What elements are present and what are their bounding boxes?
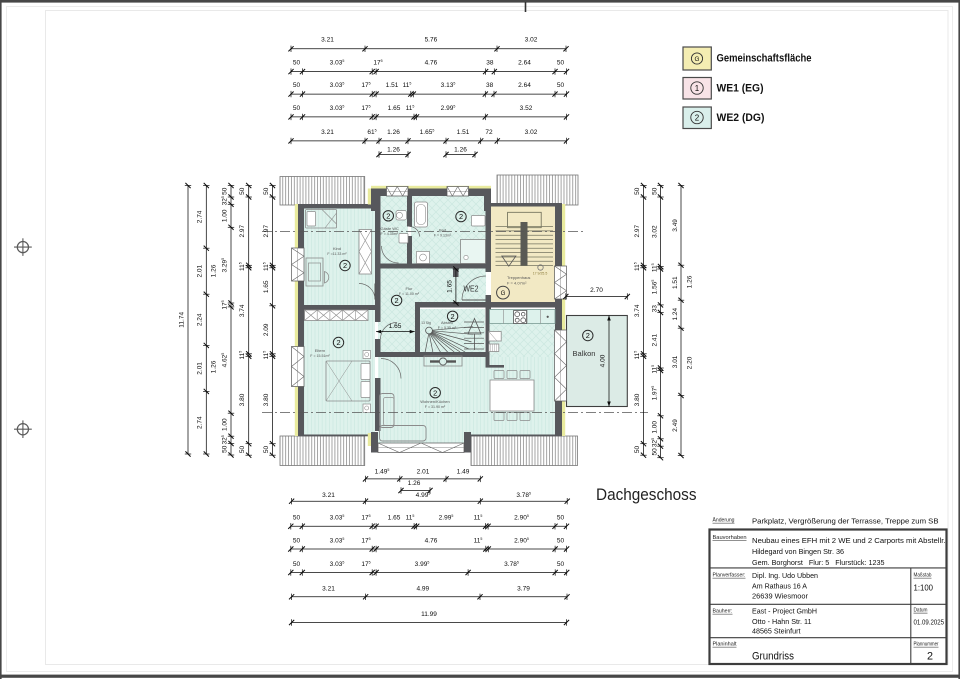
- svg-text:2: 2: [433, 388, 437, 397]
- svg-text:50: 50: [293, 105, 301, 112]
- svg-text:38: 38: [486, 60, 494, 67]
- svg-text:2.97: 2.97: [634, 224, 641, 237]
- svg-text:1.65: 1.65: [263, 280, 270, 293]
- svg-text:2.49: 2.49: [672, 419, 679, 432]
- svg-text:Parkplatz, Vergrößerung der Te: Parkplatz, Vergrößerung der Terrasse, Tr…: [752, 517, 939, 526]
- svg-text:Gemeinschaftsfläche: Gemeinschaftsfläche: [717, 53, 812, 65]
- svg-text:4.99: 4.99: [416, 585, 429, 592]
- svg-text:F = 15.51m²: F = 15.51m²: [310, 354, 330, 358]
- svg-text:3.785: 3.785: [504, 560, 519, 568]
- svg-text:2.97: 2.97: [239, 224, 246, 237]
- svg-text:1.565: 1.565: [651, 280, 659, 295]
- svg-text:50: 50: [557, 60, 565, 67]
- svg-text:Balkon: Balkon: [573, 349, 596, 358]
- svg-text:Wohnen/Küchen: Wohnen/Küchen: [420, 399, 450, 404]
- svg-text:3.21: 3.21: [322, 492, 335, 499]
- svg-text:3.80: 3.80: [634, 393, 641, 406]
- svg-text:2.97: 2.97: [263, 224, 270, 237]
- svg-text:2.905: 2.905: [514, 537, 529, 545]
- svg-text:1.65: 1.65: [389, 323, 402, 330]
- svg-text:2: 2: [459, 212, 463, 221]
- svg-text:50: 50: [557, 82, 565, 89]
- svg-text:Am Rathaus 16 A: Am Rathaus 16 A: [752, 582, 808, 591]
- svg-text:WE1 (EG): WE1 (EG): [717, 83, 764, 95]
- svg-text:3.035: 3.035: [330, 59, 345, 67]
- svg-text:F = 31.90 m²: F = 31.90 m²: [425, 405, 446, 409]
- svg-text:Otto - Hahn Str. 11: Otto - Hahn Str. 11: [752, 617, 812, 626]
- svg-text:17 9/25.5: 17 9/25.5: [533, 272, 548, 276]
- svg-text:3.21: 3.21: [321, 129, 334, 136]
- svg-text:Bad: Bad: [439, 228, 446, 233]
- svg-text:50: 50: [293, 538, 301, 545]
- svg-text:1: 1: [695, 84, 700, 93]
- svg-text:2.995: 2.995: [439, 514, 454, 522]
- svg-text:1.26: 1.26: [687, 275, 694, 288]
- svg-text:3.52: 3.52: [520, 105, 533, 112]
- svg-text:1.24: 1.24: [672, 307, 679, 320]
- svg-text:F = 4.35m²: F = 4.35m²: [381, 232, 399, 236]
- svg-text:3.02: 3.02: [525, 129, 538, 136]
- svg-text:4.00: 4.00: [600, 354, 607, 367]
- svg-text:East - Project GmbH: East - Project GmbH: [752, 607, 817, 616]
- svg-text:F =11.33 m²: F =11.33 m²: [327, 252, 347, 256]
- svg-text:1.26: 1.26: [454, 147, 467, 154]
- svg-text:50: 50: [557, 515, 565, 522]
- svg-text:2.74: 2.74: [197, 210, 204, 223]
- svg-text:G: G: [501, 290, 506, 297]
- svg-text:Dachgeschoss: Dachgeschoss: [596, 485, 697, 504]
- svg-text:2.64: 2.64: [518, 82, 531, 89]
- svg-text:2.905: 2.905: [514, 514, 529, 522]
- svg-text:Kind: Kind: [333, 246, 341, 251]
- svg-text:50: 50: [263, 446, 270, 454]
- svg-text:1:100: 1:100: [914, 584, 934, 593]
- svg-text:Flur: Flur: [406, 286, 414, 291]
- svg-text:1.26: 1.26: [387, 147, 400, 154]
- svg-text:2.70: 2.70: [590, 287, 603, 294]
- svg-text:11.74: 11.74: [179, 312, 186, 328]
- svg-text:1.00: 1.00: [652, 421, 659, 434]
- svg-text:50: 50: [557, 561, 565, 568]
- svg-text:01.09.2025: 01.09.2025: [914, 618, 945, 627]
- svg-text:3.74: 3.74: [239, 304, 246, 317]
- svg-text:50: 50: [222, 187, 229, 195]
- svg-text:50: 50: [293, 561, 301, 568]
- svg-text:3.135: 3.135: [441, 81, 456, 89]
- svg-text:3.035: 3.035: [330, 537, 345, 545]
- svg-text:2.74: 2.74: [197, 416, 204, 429]
- svg-text:3.74: 3.74: [634, 304, 641, 317]
- svg-text:2.41: 2.41: [652, 333, 659, 346]
- svg-text:2: 2: [927, 651, 933, 663]
- svg-text:1.975: 1.975: [651, 386, 659, 401]
- svg-text:1.51: 1.51: [386, 82, 399, 89]
- svg-text:3.02: 3.02: [525, 37, 538, 44]
- svg-text:Hildegard von Bingen Str. 36: Hildegard von Bingen Str. 36: [752, 547, 844, 556]
- svg-text:1.00: 1.00: [222, 209, 229, 222]
- svg-text:48565 Steinfurt: 48565 Steinfurt: [752, 627, 801, 636]
- svg-text:2: 2: [395, 296, 399, 305]
- svg-text:2: 2: [586, 331, 590, 340]
- svg-text:Eltern: Eltern: [315, 348, 325, 353]
- svg-text:3.995: 3.995: [415, 560, 430, 568]
- svg-text:4.995: 4.995: [416, 491, 431, 499]
- svg-text:WE2 (DG): WE2 (DG): [717, 112, 765, 124]
- svg-text:4.76: 4.76: [425, 60, 438, 67]
- svg-text:2: 2: [451, 312, 455, 321]
- svg-text:Dipl. Ing. Udo Ubben: Dipl. Ing. Udo Ubben: [752, 571, 818, 580]
- svg-text:2: 2: [386, 211, 390, 220]
- svg-text:F = 11.00 m²: F = 11.00 m²: [399, 292, 420, 296]
- svg-text:3.21: 3.21: [321, 37, 334, 44]
- svg-text:5.76: 5.76: [425, 37, 438, 44]
- svg-text:Plannummer: Plannummer: [914, 642, 939, 648]
- svg-text:4.76: 4.76: [425, 538, 438, 545]
- svg-text:1.51: 1.51: [672, 276, 679, 289]
- svg-text:Planinhalt: Planinhalt: [713, 642, 737, 648]
- svg-text:3.035: 3.035: [330, 81, 345, 89]
- svg-text:1.655: 1.655: [420, 128, 435, 136]
- svg-text:2.01: 2.01: [417, 469, 430, 476]
- svg-text:WE2: WE2: [464, 285, 479, 294]
- svg-text:Gäste WC: Gäste WC: [381, 226, 400, 231]
- svg-text:1.26: 1.26: [408, 480, 421, 487]
- svg-text:2.24: 2.24: [197, 313, 204, 326]
- svg-text:Treppenhaus: Treppenhaus: [507, 275, 530, 280]
- svg-text:3.035: 3.035: [330, 514, 345, 522]
- svg-text:3.295: 3.295: [221, 258, 229, 273]
- svg-text:G: G: [695, 56, 700, 63]
- svg-text:2.01: 2.01: [197, 362, 204, 375]
- svg-text:Bauvorhaben: Bauvorhaben: [713, 535, 747, 541]
- svg-text:50: 50: [239, 446, 246, 454]
- svg-text:3.80: 3.80: [263, 393, 270, 406]
- svg-text:50: 50: [557, 538, 565, 545]
- svg-text:2.01: 2.01: [197, 264, 204, 277]
- svg-text:2.995: 2.995: [441, 104, 456, 112]
- svg-text:50: 50: [293, 515, 301, 522]
- svg-text:3.035: 3.035: [330, 104, 345, 112]
- svg-text:50: 50: [634, 187, 641, 195]
- svg-text:38: 38: [486, 82, 494, 89]
- svg-text:1.65: 1.65: [447, 280, 454, 293]
- svg-text:33: 33: [652, 305, 659, 313]
- svg-text:2.09: 2.09: [263, 323, 270, 336]
- svg-text:2: 2: [336, 338, 340, 347]
- svg-text:3.035: 3.035: [330, 560, 345, 568]
- svg-text:3.785: 3.785: [516, 491, 531, 499]
- svg-text:3.80: 3.80: [239, 393, 246, 406]
- svg-text:Grundriss: Grundriss: [752, 651, 795, 663]
- svg-text:2.64: 2.64: [518, 60, 531, 67]
- svg-text:3.21: 3.21: [322, 585, 335, 592]
- svg-text:3.02: 3.02: [652, 225, 659, 238]
- svg-text:1.26: 1.26: [211, 360, 218, 373]
- svg-text:11.99: 11.99: [421, 611, 437, 618]
- svg-text:Bauherr:: Bauherr:: [713, 609, 733, 615]
- svg-text:F = 4.07m²: F = 4.07m²: [507, 281, 527, 286]
- svg-text:3.49: 3.49: [672, 219, 679, 232]
- svg-text:1.26: 1.26: [211, 264, 218, 277]
- svg-text:1.65: 1.65: [388, 105, 401, 112]
- svg-text:Maßstab: Maßstab: [914, 573, 932, 579]
- svg-text:26639 Wiesmoor: 26639 Wiesmoor: [752, 592, 808, 601]
- svg-text:50: 50: [293, 82, 301, 89]
- svg-text:50: 50: [293, 60, 301, 67]
- svg-text:Neubau eines EFH mit 2 WE und: Neubau eines EFH mit 2 WE und 2 Carports…: [752, 536, 946, 545]
- svg-text:1.26: 1.26: [387, 129, 400, 136]
- svg-text:Datum: Datum: [914, 608, 928, 614]
- svg-text:1.495: 1.495: [375, 468, 390, 476]
- svg-text:50: 50: [652, 448, 659, 456]
- svg-text:3.79: 3.79: [517, 585, 530, 592]
- svg-text:13 Stg: 13 Stg: [421, 321, 431, 325]
- svg-text:72: 72: [485, 129, 493, 136]
- svg-text:Gem. Borghorst Flur: 5 Flu: Gem. Borghorst Flur: 5 Flurstück: 1235: [752, 558, 885, 567]
- svg-text:50: 50: [634, 446, 641, 454]
- svg-text:Planverfasser:: Planverfasser:: [713, 573, 746, 579]
- svg-text:50: 50: [239, 187, 246, 195]
- svg-text:2: 2: [343, 261, 347, 270]
- svg-text:F = 5.35 m²: F = 5.35 m²: [438, 326, 457, 330]
- svg-text:1.65: 1.65: [388, 515, 401, 522]
- svg-text:50: 50: [263, 187, 270, 195]
- svg-text:2: 2: [695, 114, 700, 123]
- svg-text:2.20: 2.20: [687, 356, 694, 369]
- svg-text:50: 50: [652, 187, 659, 195]
- svg-text:F = 9.13m²: F = 9.13m²: [434, 234, 452, 238]
- svg-text:50: 50: [222, 445, 229, 453]
- svg-text:Änderung: Änderung: [713, 517, 735, 524]
- svg-text:1.00: 1.00: [222, 418, 229, 431]
- svg-text:3.01: 3.01: [672, 355, 679, 368]
- svg-text:1.51: 1.51: [457, 129, 470, 136]
- svg-text:1.49: 1.49: [457, 469, 470, 476]
- svg-text:4.625: 4.625: [221, 353, 229, 368]
